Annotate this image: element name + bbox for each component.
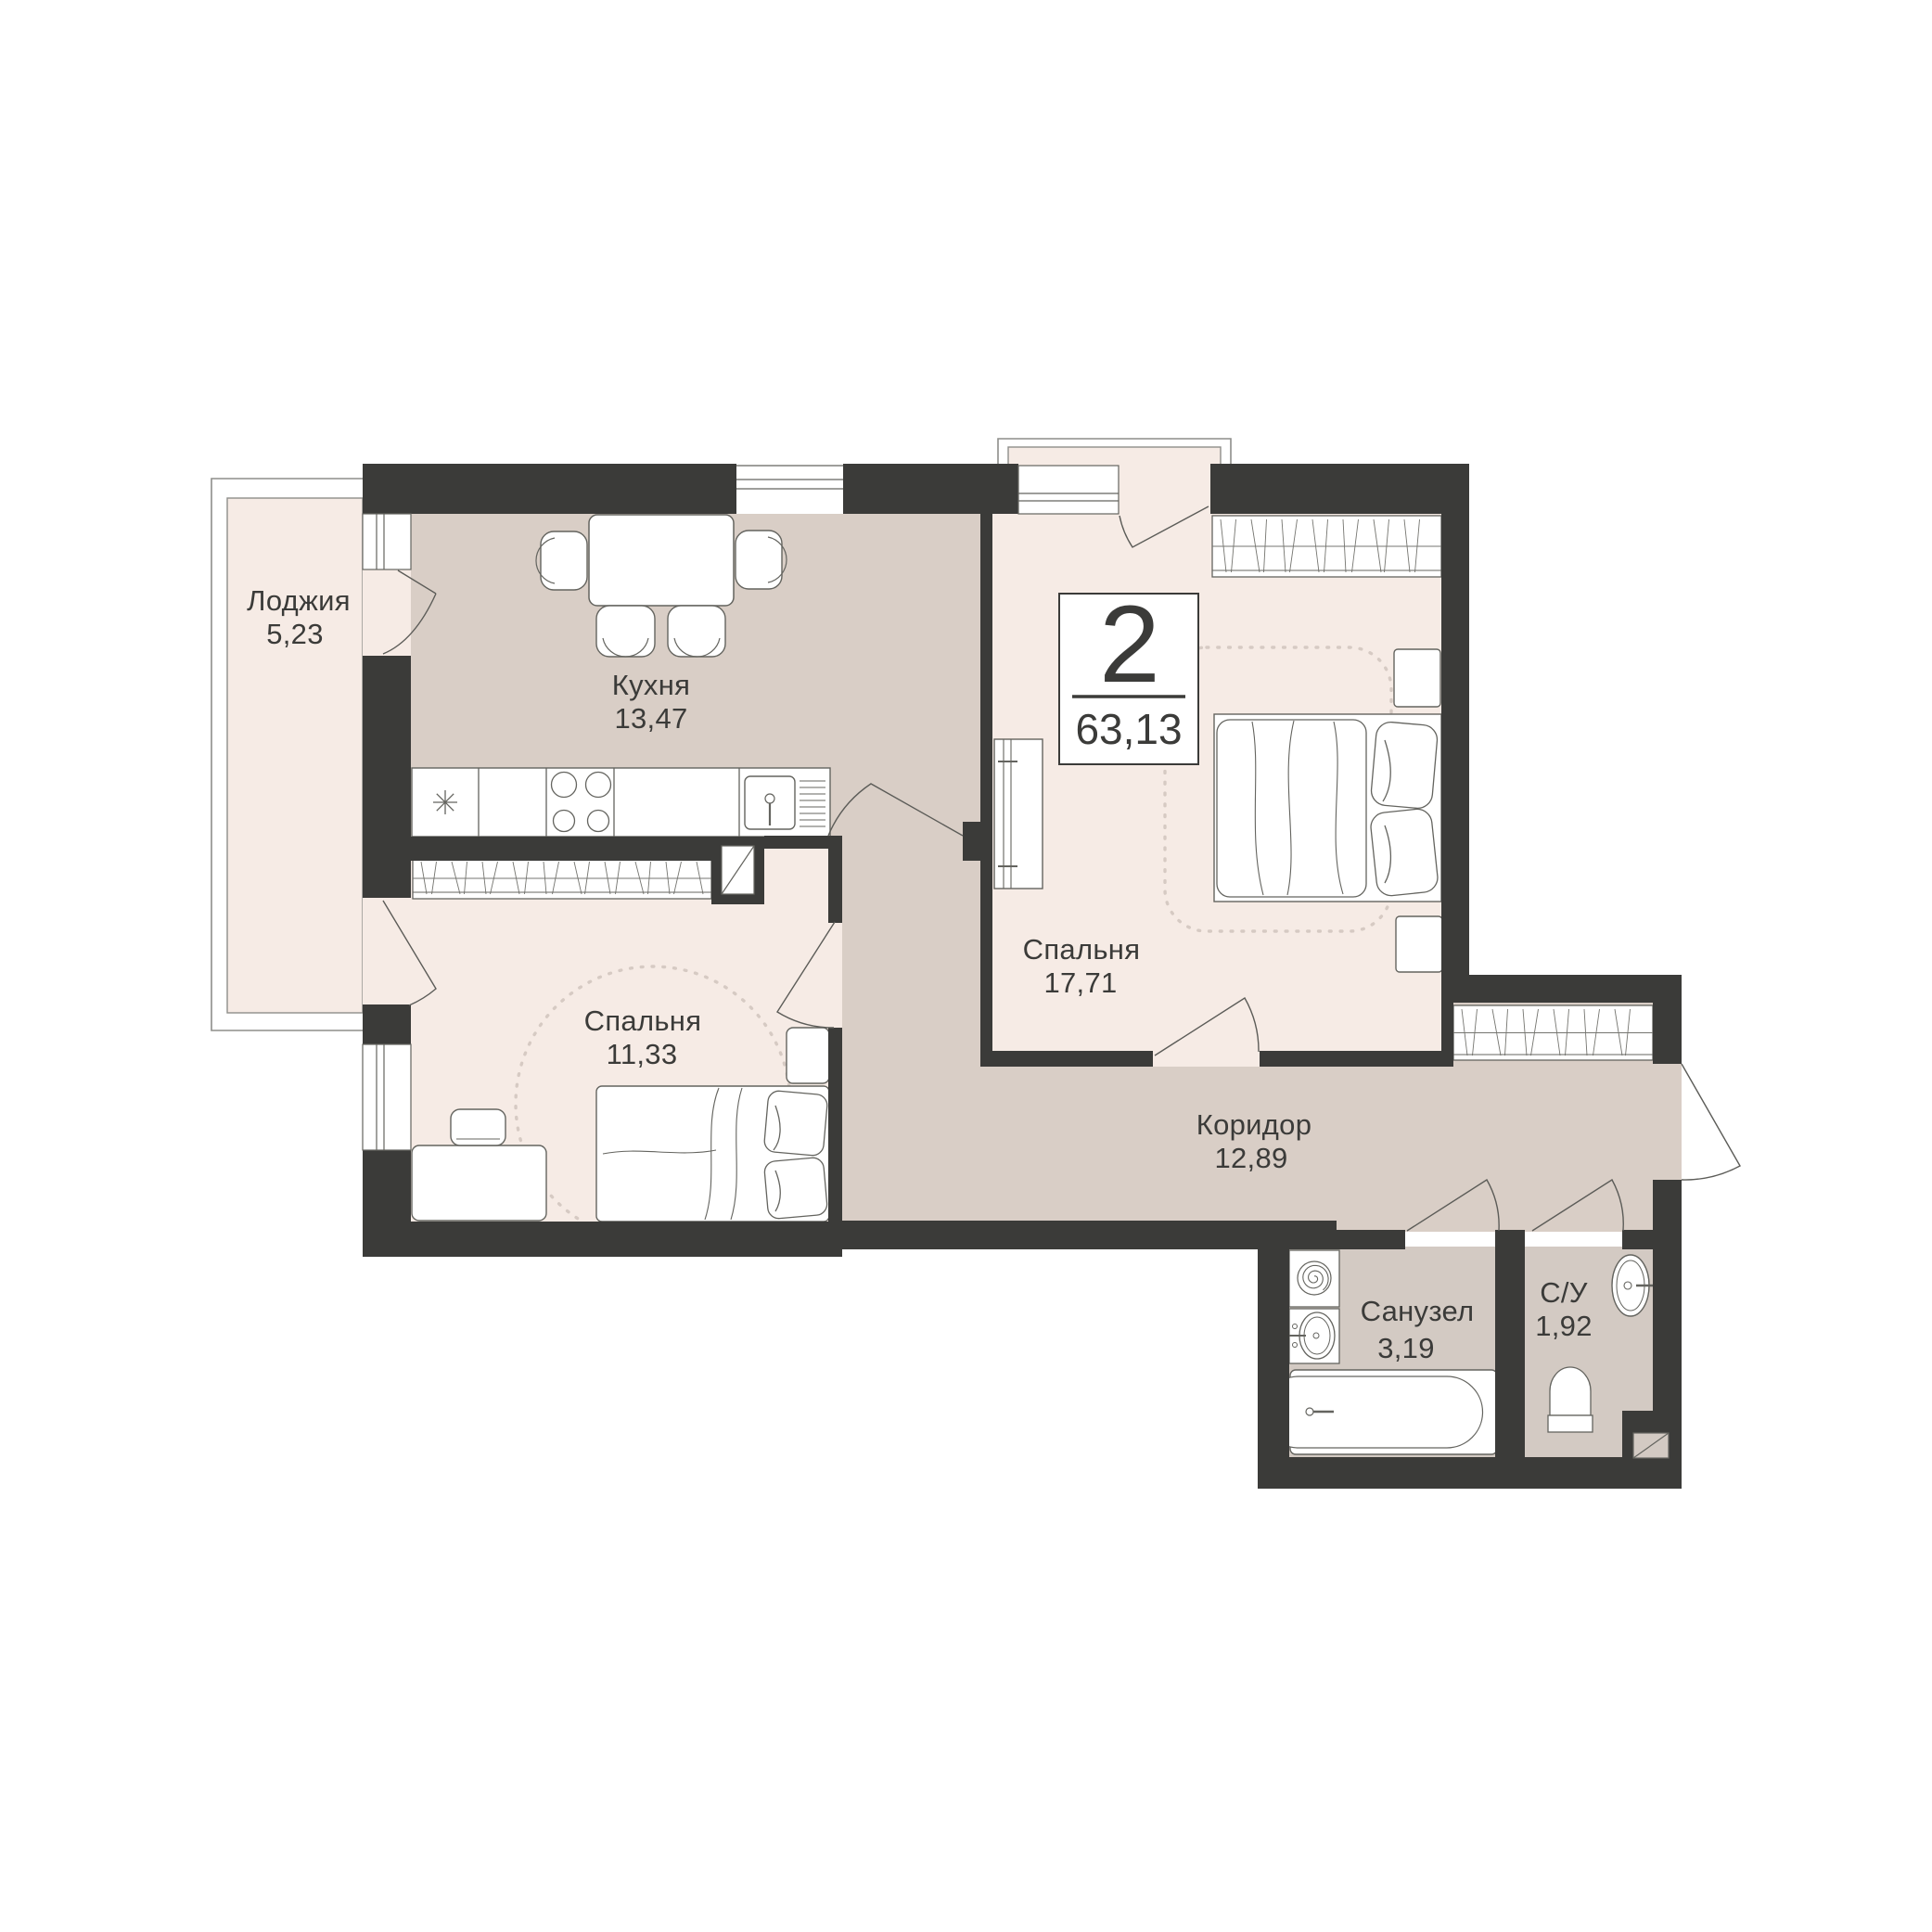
svg-text:2: 2 bbox=[1099, 583, 1160, 706]
svg-text:5,23: 5,23 bbox=[266, 618, 324, 650]
svg-text:12,89: 12,89 bbox=[1214, 1142, 1287, 1174]
svg-text:Спальня: Спальня bbox=[584, 1004, 702, 1037]
svg-text:Лоджия: Лоджия bbox=[247, 584, 351, 617]
svg-text:С/У: С/У bbox=[1540, 1276, 1588, 1309]
svg-text:1,92: 1,92 bbox=[1535, 1310, 1593, 1342]
svg-text:Санузел: Санузел bbox=[1361, 1295, 1475, 1327]
svg-text:3,19: 3,19 bbox=[1377, 1332, 1435, 1364]
svg-text:13,47: 13,47 bbox=[614, 702, 687, 735]
svg-text:Спальня: Спальня bbox=[1023, 933, 1141, 966]
svg-text:63,13: 63,13 bbox=[1075, 705, 1182, 753]
svg-text:Коридор: Коридор bbox=[1196, 1108, 1312, 1141]
svg-text:11,33: 11,33 bbox=[607, 1038, 678, 1070]
svg-text:Кухня: Кухня bbox=[612, 669, 690, 701]
svg-text:17,71: 17,71 bbox=[1043, 966, 1117, 999]
